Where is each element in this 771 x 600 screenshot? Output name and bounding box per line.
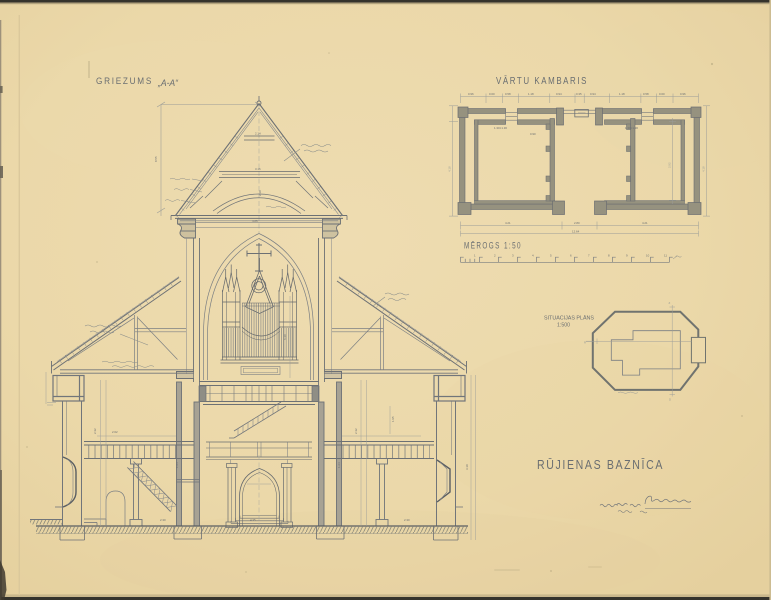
svg-text:4.25: 4.25 <box>252 219 258 223</box>
svg-text:2.92: 2.92 <box>668 162 672 168</box>
svg-text:VĀRTU KAMBARIS: VĀRTU KAMBARIS <box>496 75 588 87</box>
svg-text:10: 10 <box>646 254 650 258</box>
svg-text:D: D <box>669 398 671 402</box>
svg-text:0.94: 0.94 <box>590 92 596 96</box>
svg-text:1.30×1.30: 1.30×1.30 <box>625 126 638 130</box>
svg-text:11: 11 <box>664 254 667 258</box>
svg-text:4.21: 4.21 <box>642 221 648 225</box>
svg-text:2.30: 2.30 <box>160 518 166 522</box>
svg-text:2.14: 2.14 <box>255 132 261 136</box>
svg-text:0.58: 0.58 <box>505 92 511 96</box>
svg-text:Z: Z <box>669 301 671 305</box>
svg-text:1.95: 1.95 <box>391 416 395 422</box>
svg-text:RŪJIENAS BAZNĪCA: RŪJIENAS BAZNĪCA <box>537 457 664 472</box>
svg-text:0.96: 0.96 <box>468 92 474 96</box>
svg-text:SITUACIJAS PLĀNS: SITUACIJAS PLĀNS <box>544 315 595 322</box>
svg-text:4.35: 4.35 <box>250 518 256 522</box>
svg-text:4.18: 4.18 <box>702 166 706 172</box>
svg-text:1.18: 1.18 <box>619 92 625 96</box>
svg-text:R: R <box>584 341 586 345</box>
svg-text:2.30: 2.30 <box>404 518 410 522</box>
svg-text:2.32: 2.32 <box>93 428 97 434</box>
svg-text:0.60: 0.60 <box>659 92 665 96</box>
svg-text:6.40: 6.40 <box>283 334 287 340</box>
svg-text:0.96: 0.96 <box>680 92 686 96</box>
svg-text:2.62: 2.62 <box>112 430 118 434</box>
svg-text:1.30×1.30: 1.30×1.30 <box>494 126 507 130</box>
svg-text:8.55: 8.55 <box>154 156 158 162</box>
svg-text:2.80: 2.80 <box>574 221 580 225</box>
svg-text:MĒROGS 1:50: MĒROGS 1:50 <box>464 241 522 251</box>
svg-text:1.24: 1.24 <box>175 462 179 468</box>
svg-text:„A-A“: „A-A“ <box>157 78 179 89</box>
svg-text:4.21: 4.21 <box>505 221 511 225</box>
svg-text:3.16: 3.16 <box>255 167 261 171</box>
svg-text:1.18: 1.18 <box>528 92 534 96</box>
svg-text:2.10: 2.10 <box>258 190 262 196</box>
svg-text:GRIEZUMS: GRIEZUMS <box>96 76 153 87</box>
svg-text:3.10: 3.10 <box>465 464 469 470</box>
svg-text:0.35: 0.35 <box>576 92 582 96</box>
svg-text:0.90: 0.90 <box>530 132 536 136</box>
svg-text:0.58: 0.58 <box>643 92 649 96</box>
svg-text:4.18: 4.18 <box>448 166 452 172</box>
svg-text:0.94: 0.94 <box>556 92 562 96</box>
svg-text:0.60: 0.60 <box>489 92 495 96</box>
svg-text:12.64: 12.64 <box>572 230 580 234</box>
svg-text:1:500: 1:500 <box>557 323 570 329</box>
svg-text:1.24: 1.24 <box>337 462 341 468</box>
svg-text:2.32: 2.32 <box>354 428 358 434</box>
